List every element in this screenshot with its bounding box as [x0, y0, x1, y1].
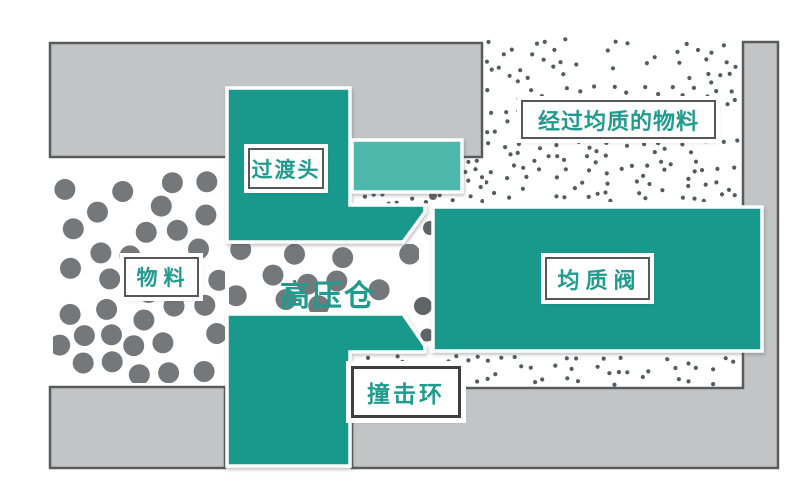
diagram-svg — [0, 0, 800, 496]
housing-bottom-left-block — [50, 387, 225, 468]
label-transition-head: 过渡头 — [248, 148, 324, 189]
particle-field-outlet-top-left-notch — [463, 159, 484, 204]
squeezed-particle — [414, 297, 432, 315]
valve-seat-block — [352, 140, 462, 192]
label-homogenized-material: 经过均质的物料 — [521, 100, 716, 139]
label-high-pressure-chamber: 高压仓 — [280, 271, 376, 315]
label-material: 物料 — [124, 257, 199, 297]
label-impact-ring: 撞击环 — [351, 366, 461, 418]
homogenizer-diagram: 过渡头 经过均质的物料 物料 高压仓 均质阀 撞击环 — [0, 0, 800, 496]
label-homogenizing-valve: 均质阀 — [545, 257, 650, 300]
